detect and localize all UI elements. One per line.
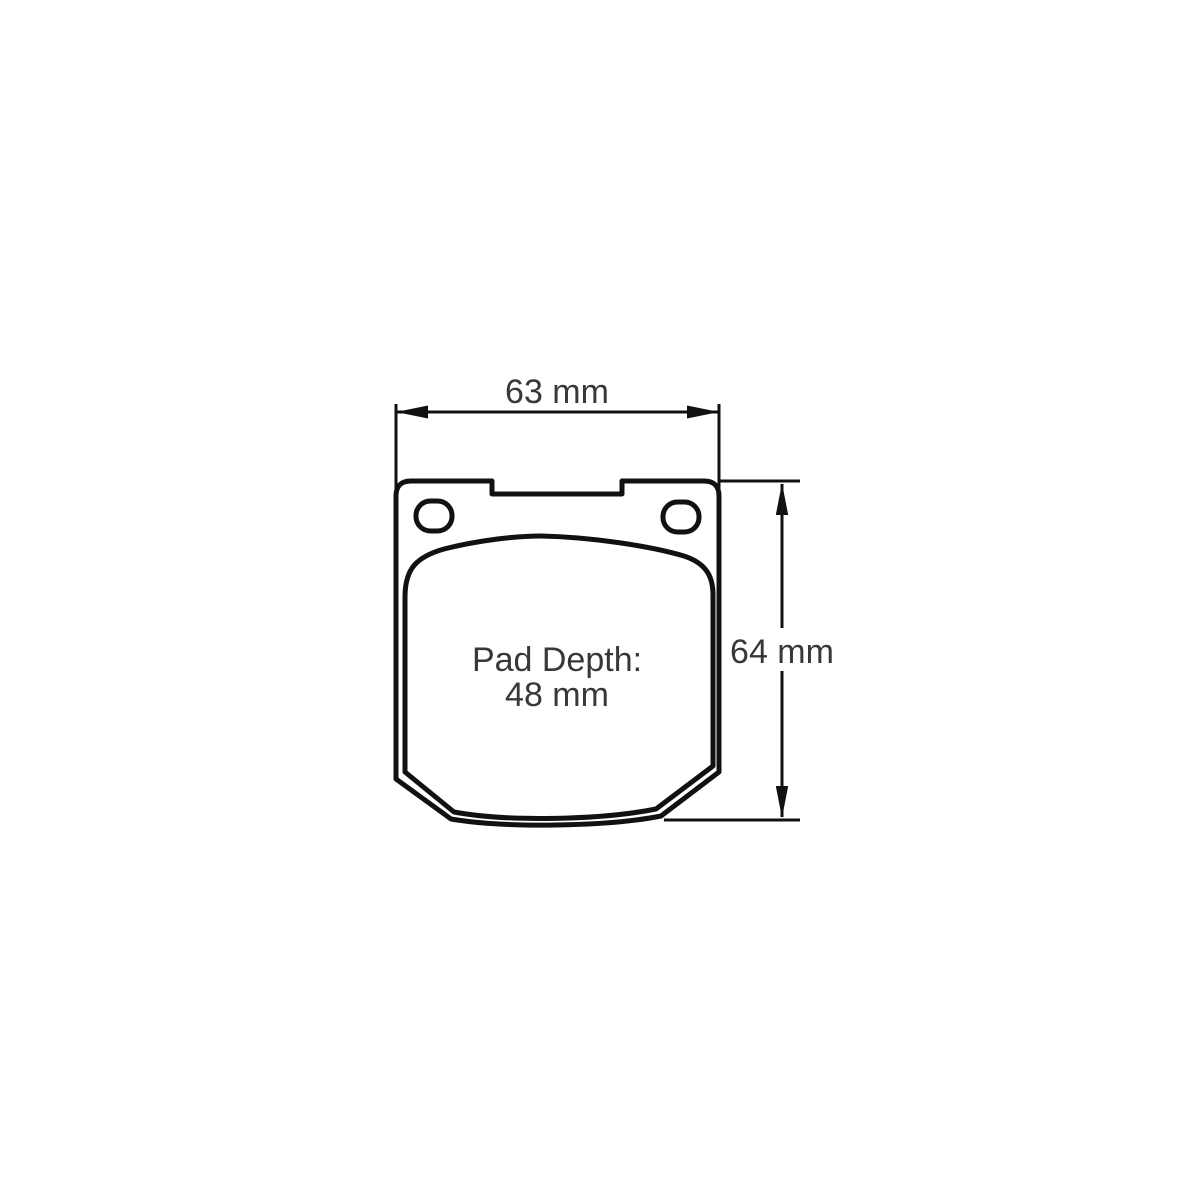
width-dimension-label: 63 mm (505, 373, 609, 411)
mounting-hole-left (416, 501, 452, 531)
height-dimension-label: 64 mm (730, 633, 834, 671)
pad-depth-value: 48 mm (505, 676, 609, 714)
mounting-hole-right (663, 502, 699, 532)
height-arrow-up-icon (776, 483, 788, 515)
width-arrow-left-icon (396, 406, 428, 419)
technical-drawing-canvas: 63 mm 64 mm Pad Depth: 48 mm (0, 0, 1200, 1200)
width-arrow-right-icon (687, 406, 719, 419)
height-arrow-down-icon (776, 786, 788, 818)
brake-pad-dimension-diagram: 63 mm 64 mm Pad Depth: 48 mm (0, 0, 1200, 1200)
pad-depth-annotation: Pad Depth: 48 mm (472, 641, 642, 714)
pad-depth-caption: Pad Depth: (472, 641, 642, 679)
